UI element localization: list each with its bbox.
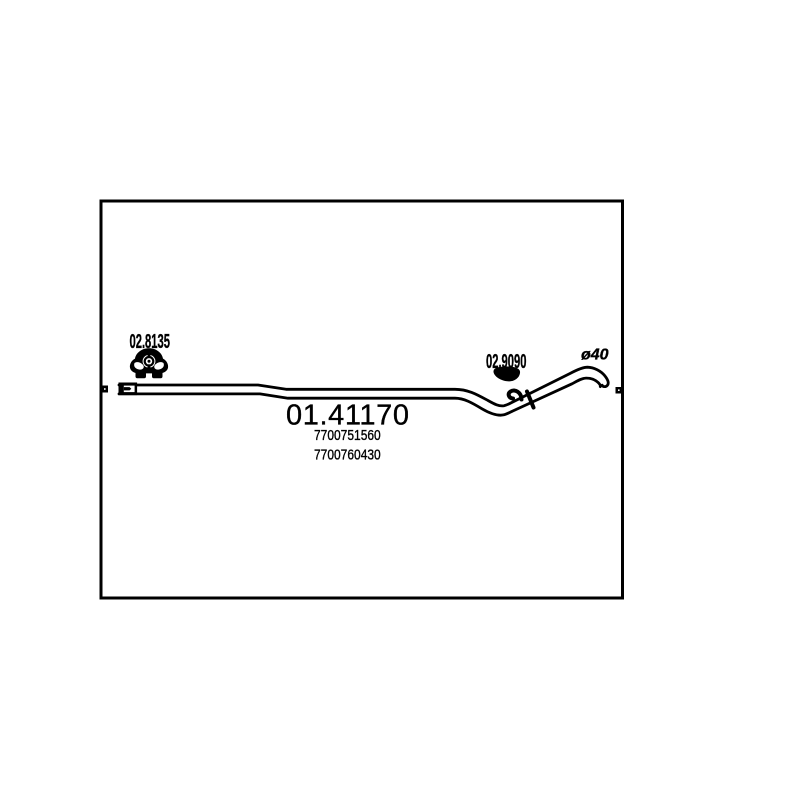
svg-text:7700751560: 7700751560: [314, 427, 381, 444]
svg-text:ø40: ø40: [581, 347, 609, 364]
svg-text:7700760430: 7700760430: [314, 446, 381, 463]
